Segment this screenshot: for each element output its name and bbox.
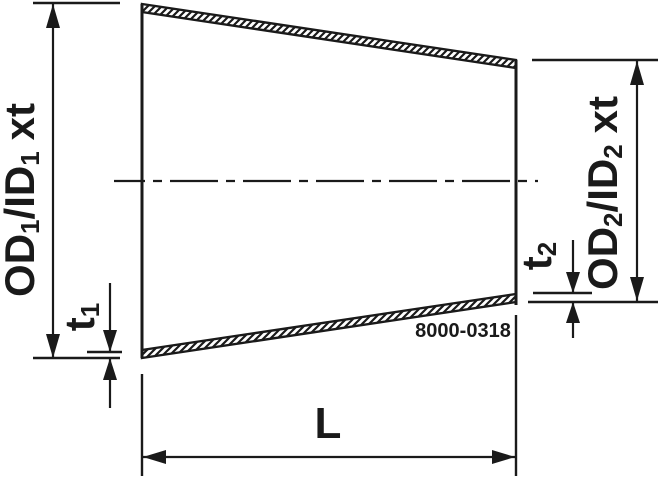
t1-label: t1: [59, 303, 101, 331]
od1-label-mid: /ID: [0, 166, 43, 220]
od2-label-suffix: xt: [579, 96, 626, 133]
od2-label-sub2: 2: [598, 144, 628, 158]
od2-label-prefix: OD: [579, 227, 626, 290]
od2-arrow-up: [630, 61, 644, 85]
length-label: L: [315, 402, 342, 446]
t1-arrow-up: [103, 358, 117, 380]
top-wall-hatched: [142, 4, 516, 68]
od1-label: OD1/ID1xt: [0, 103, 41, 297]
od1-arrow-up: [46, 4, 60, 28]
t2-arrow-down: [566, 272, 580, 293]
t2-label-text: t: [513, 256, 560, 270]
od2-label-sub1: 2: [598, 212, 628, 226]
od1-label-sub2: 1: [15, 151, 45, 165]
t1-label-sub: 1: [75, 303, 105, 317]
od1-label-prefix: OD: [0, 234, 43, 297]
od2-label: OD2/ID2xt: [582, 96, 624, 290]
od1-arrow-down: [46, 334, 60, 358]
t2-label: t2: [516, 242, 558, 270]
od1-label-sub1: 1: [15, 219, 45, 233]
t2-label-sub: 2: [532, 242, 562, 256]
od1-label-suffix: xt: [0, 103, 43, 140]
length-arrow-left: [143, 450, 166, 464]
t1-arrow-down: [103, 330, 117, 352]
drawing-number: 8000-0318: [415, 321, 511, 341]
length-arrow-right: [492, 450, 515, 464]
od2-arrow-down: [630, 277, 644, 301]
t2-arrow-up: [566, 302, 580, 323]
reducer-technical-drawing: OD1/ID1xt OD2/ID2xt t1 t2 L 8000-0318: [0, 0, 659, 477]
t1-label-text: t: [56, 317, 103, 331]
t1-dimension: [87, 283, 122, 408]
od2-label-mid: /ID: [579, 159, 626, 213]
